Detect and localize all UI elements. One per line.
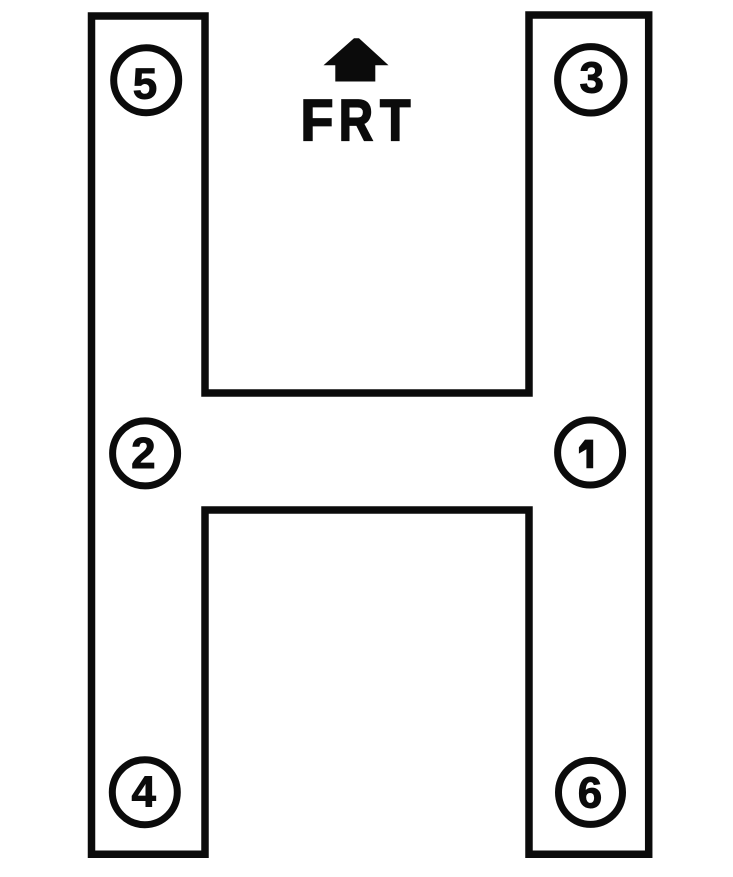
svg-text:R: R <box>339 89 373 154</box>
svg-text:2: 2 <box>131 429 155 478</box>
svg-text:T: T <box>380 89 410 153</box>
svg-text:3: 3 <box>580 54 604 103</box>
svg-text:F: F <box>301 88 334 153</box>
svg-text:6: 6 <box>578 769 602 818</box>
svg-text:4: 4 <box>131 767 156 816</box>
svg-text:5: 5 <box>133 59 157 108</box>
